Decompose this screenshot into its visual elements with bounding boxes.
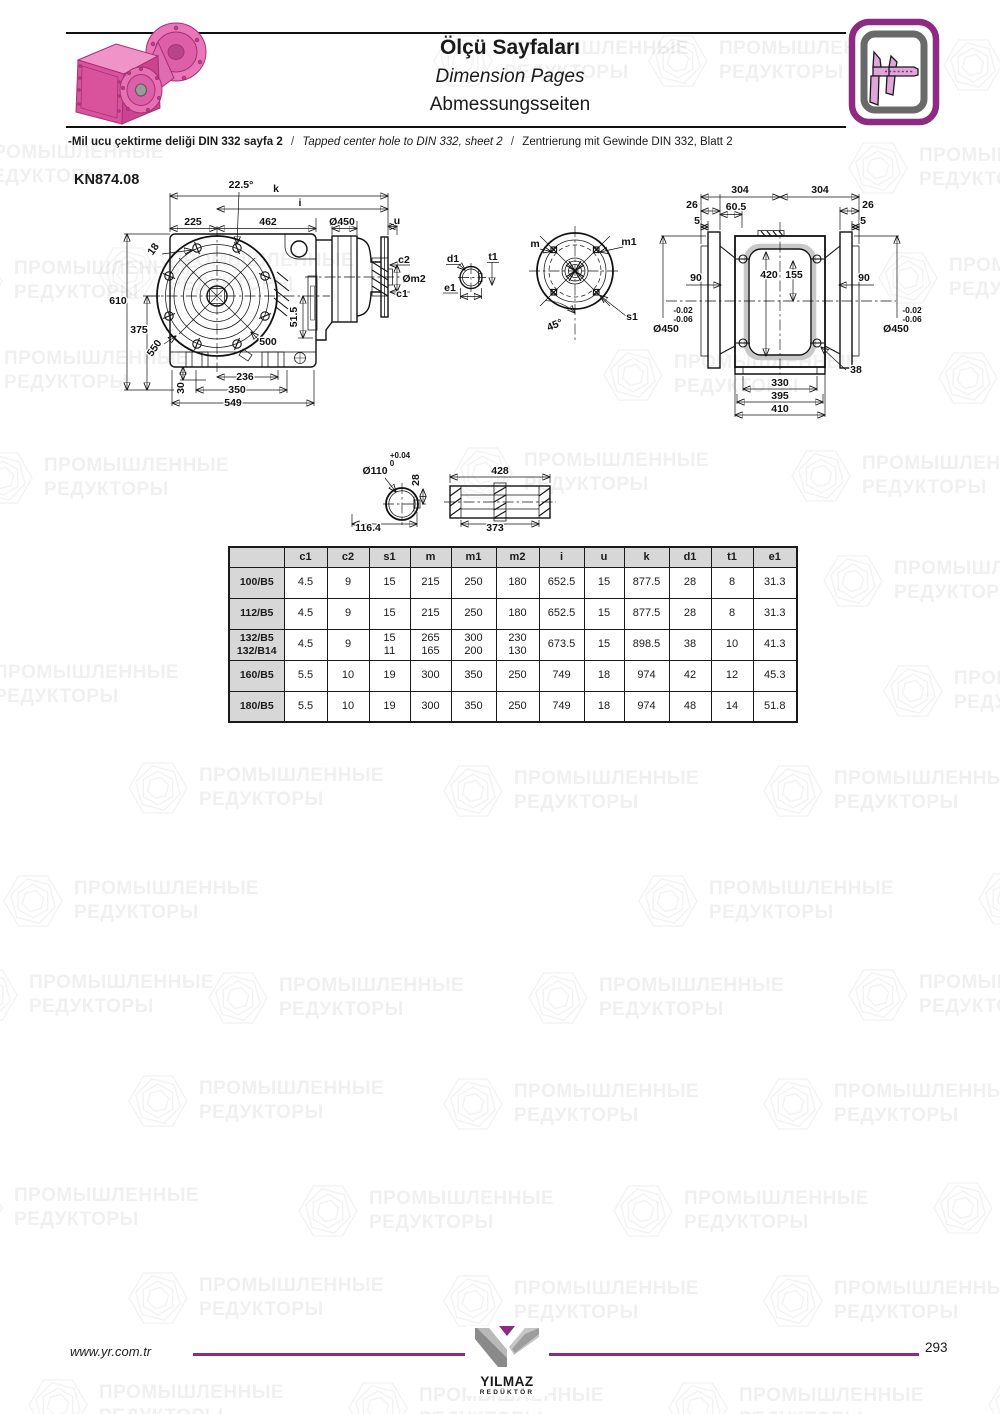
- dimension-label: 225: [184, 216, 202, 228]
- hexagon-logo-watermark-icon: [125, 1265, 191, 1331]
- hexagon-logo-watermark-icon: [610, 1178, 676, 1244]
- watermark-text: ПРОМЫШЛЕННЫЕРЕДУКТОРЫ: [599, 974, 784, 1022]
- table-header-cell: m2: [496, 547, 539, 567]
- hexagon-logo-watermark-icon: [295, 1178, 361, 1244]
- watermark: ПРОМЫШЛЕННЫЕРЕДУКТОРЫ: [635, 868, 894, 934]
- logo-company-name: YILMAZ: [466, 1374, 548, 1389]
- watermark: ПРОМЫШЛЕННЫЕРЕДУКТОРЫ: [0, 1175, 199, 1241]
- hexagon-logo-watermark-icon: [25, 1372, 91, 1414]
- dimension-label: 90: [858, 272, 870, 284]
- table-row: 112/B54.5915215250180652.515877.528831.3: [229, 598, 797, 629]
- hexagon-logo-watermark-icon: [125, 755, 191, 821]
- watermark: ПРОМЫШЛЕННЫЕРЕДУКТОРЫ: [0, 868, 259, 934]
- hexagon-logo-watermark-icon: [760, 758, 826, 824]
- watermark-text: ПРОМЫШЛЕННЫЕРЕДУКТОРЫ: [29, 971, 214, 1019]
- dimension-label: m1: [621, 236, 636, 248]
- dimension-label: 395: [771, 390, 789, 402]
- dimension-label: 428: [491, 465, 509, 477]
- table-header-cell: s1: [369, 547, 410, 567]
- table-cell: 652.5: [539, 567, 584, 598]
- dimension-label: d1: [447, 253, 459, 265]
- table-row: 180/B55.5101930035025074918974481451.8: [229, 691, 797, 722]
- dimension-label: 28: [410, 474, 422, 486]
- table-cell: 250: [496, 660, 539, 691]
- table-cell: 31.3: [753, 598, 797, 629]
- table-header-cell: [229, 547, 284, 567]
- hexagon-logo-watermark-icon: [440, 1268, 506, 1334]
- watermark: ПРОМЫШЛЕННЫЕРЕДУКТОРЫ: [940, 32, 1000, 98]
- watermark: ПРОМЫШЛЕННЫЕРЕДУКТОРЫ: [930, 1175, 1000, 1241]
- hexagon-logo-watermark-icon: [820, 548, 886, 614]
- table-header-cell: k: [624, 547, 669, 567]
- gearbox-image-svg: [62, 16, 212, 128]
- table-cell: 15 11: [369, 629, 410, 660]
- dimension-label: 26: [686, 199, 698, 211]
- watermark-text: ПРОМЫШЛЕННЫЕРЕДУКТОРЫ: [514, 767, 699, 815]
- table-cell: 652.5: [539, 598, 584, 629]
- table-cell: 898.5: [624, 629, 669, 660]
- hexagon-logo-watermark-icon: [345, 1375, 411, 1414]
- watermark: ПРОМЫШЛЕННЫЕРЕДУКТОРЫ: [440, 1268, 699, 1334]
- hexagon-logo-watermark-icon: [940, 32, 1000, 98]
- technical-drawings: 22.5°ki225462Ø450u1861037555050051.53023…: [0, 160, 1000, 545]
- hexagon-logo-watermark-icon: [930, 1175, 996, 1241]
- dimension-label: 410: [771, 403, 789, 415]
- catalog-page: { "header": { "title_tr": "Ölçü Sayfalar…: [0, 0, 1000, 1414]
- dimension-label: 5: [860, 215, 866, 227]
- output-shaft-drawing: [352, 474, 556, 527]
- footer-website: www.yr.com.tr: [70, 1344, 151, 1359]
- table-cell: 41.3: [753, 629, 797, 660]
- table-header-cell: c2: [327, 547, 369, 567]
- watermark: ПРОМЫШЛЕННЫЕРЕДУКТОРЫ: [665, 1375, 924, 1414]
- watermark: ПРОМЫШЛЕННЫЕРЕДУКТОРЫ: [760, 1268, 1000, 1334]
- page-title-german: Abmessungsseiten: [310, 94, 710, 116]
- watermark-text: ПРОМЫШЛЕННЫЕРЕДУКТОРЫ: [369, 1187, 554, 1235]
- table-cell: 18: [584, 691, 624, 722]
- watermark-text: ПРОМЫШЛЕННЫЕРЕДУКТОРЫ: [514, 1277, 699, 1325]
- table-cell: 300: [410, 691, 451, 722]
- watermark-text: ПРОМЫШЛЕННЫЕРЕДУКТОРЫ: [279, 974, 464, 1022]
- dimension-label: e1: [444, 282, 456, 294]
- table-row: 100/B54.5915215250180652.515877.528831.3: [229, 567, 797, 598]
- table-cell: 9: [327, 567, 369, 598]
- hexagon-logo-watermark-icon: [0, 1175, 6, 1241]
- dimension-label: 45°: [545, 317, 564, 334]
- table-cell: 15: [369, 598, 410, 629]
- hexagon-logo-watermark-icon: [635, 868, 701, 934]
- dimension-label: 38: [850, 364, 862, 376]
- watermark: ПРОМЫШЛЕННЫЕРЕДУКТОРЫ: [845, 962, 1000, 1028]
- table-cell: 48: [669, 691, 711, 722]
- table-cell: 180: [496, 567, 539, 598]
- table-cell: 12: [711, 660, 753, 691]
- watermark: ПРОМЫШЛЕННЫЕРЕДУКТОРЫ: [125, 1265, 384, 1331]
- footer-rule-right: [549, 1353, 919, 1356]
- dimension-label: 22.5°: [229, 179, 254, 191]
- table-cell: 51.8: [753, 691, 797, 722]
- watermark-text: ПРОМЫШЛЕННЫЕРЕДУКТОРЫ: [739, 1384, 924, 1414]
- watermark-text: ПРОМЫШЛЕННЫЕРЕДУКТОРЫ: [199, 1077, 384, 1125]
- table-row-label: 112/B5: [229, 598, 284, 629]
- dimension-label: 420: [760, 269, 778, 281]
- dimension-label: 500: [259, 336, 277, 348]
- table-header-cell: i: [539, 547, 584, 567]
- output-flange-view-drawing: [529, 226, 626, 340]
- watermark-text: ПРОМЫШЛЕННЫЕРЕДУКТОРЫ: [14, 1184, 199, 1232]
- table-cell: 10: [327, 691, 369, 722]
- caliper-icon-badge: [848, 18, 940, 131]
- dimension-label: Øm2: [402, 273, 426, 285]
- page-title-block: Ölçü Sayfaları Dimension Pages Abmessung…: [310, 36, 710, 116]
- table-cell: 300: [410, 660, 451, 691]
- table-cell: 45.3: [753, 660, 797, 691]
- table-cell: 974: [624, 660, 669, 691]
- table-cell: 8: [711, 567, 753, 598]
- table-cell: 250: [496, 691, 539, 722]
- caliper-icon: [848, 18, 940, 126]
- dimension-label: 304: [731, 184, 749, 196]
- table-cell: 974: [624, 691, 669, 722]
- watermark-text: ПРОМЫШЛЕННЫЕРЕДУКТОРЫ: [834, 1277, 1000, 1325]
- dimension-label: 373: [486, 522, 504, 534]
- dimension-label: 549: [224, 397, 242, 409]
- dimension-label: 60.5: [726, 201, 747, 213]
- table-cell: 9: [327, 629, 369, 660]
- table-cell: 180: [496, 598, 539, 629]
- hexagon-logo-watermark-icon: [760, 1071, 826, 1137]
- dimension-label: 610: [109, 295, 127, 307]
- watermark: ПРОМЫШЛЕННЫЕРЕДУКТОРЫ: [25, 1372, 284, 1414]
- watermark: ПРОМЫШЛЕННЫЕРЕДУКТОРЫ: [0, 962, 214, 1028]
- watermark-text: ПРОМЫШЛЕННЫЕРЕДУКТОРЫ: [0, 661, 179, 709]
- table-cell: 15: [584, 629, 624, 660]
- watermark: ПРОМЫШЛЕННЫЕРЕДУКТОРЫ: [820, 548, 1000, 614]
- dimension-label: 116.4: [355, 522, 381, 534]
- watermark: ПРОМЫШЛЕННЫЕРЕДУКТОРЫ: [760, 1071, 1000, 1137]
- hexagon-logo-watermark-icon: [440, 758, 506, 824]
- dimension-label: 330: [771, 377, 789, 389]
- table-cell: 215: [410, 598, 451, 629]
- hexagon-logo-watermark-icon: [440, 1071, 506, 1137]
- dimension-label: 30: [175, 382, 187, 394]
- table-cell: 250: [451, 598, 496, 629]
- table-row-label: 180/B5: [229, 691, 284, 722]
- table-cell: 19: [369, 660, 410, 691]
- dimension-label: m: [530, 238, 539, 250]
- watermark-text: ПРОМЫШЛЕННЫЕРЕДУКТОРЫ: [74, 877, 259, 925]
- watermark: ПРОМЫШЛЕННЫЕРЕДУКТОРЫ: [985, 1372, 1000, 1414]
- page-number: 293: [925, 1340, 948, 1355]
- hexagon-logo-watermark-icon: [760, 1268, 826, 1334]
- note-separator: /: [291, 136, 294, 148]
- watermark-text: ПРОМЫШЛЕННЫЕРЕДУКТОРЫ: [954, 667, 1000, 715]
- watermark: ПРОМЫШЛЕННЫЕРЕДУКТОРЫ: [880, 658, 1000, 724]
- table-cell: 4.5: [284, 567, 327, 598]
- watermark: ПРОМЫШЛЕННЫЕРЕДУКТОРЫ: [610, 1178, 869, 1244]
- watermark: ПРОМЫШЛЕННЫЕРЕДУКТОРЫ: [440, 1071, 699, 1137]
- watermark: ПРОМЫШЛЕННЫЕРЕДУКТОРЫ: [205, 965, 464, 1031]
- table-cell: 5.5: [284, 691, 327, 722]
- table-cell: 15: [584, 598, 624, 629]
- table-cell: 42: [669, 660, 711, 691]
- hexagon-logo-watermark-icon: [125, 1068, 191, 1134]
- watermark-text: ПРОМЫШЛЕННЫЕРЕДУКТОРЫ: [99, 1381, 284, 1414]
- gearbox-product-image: [62, 16, 212, 133]
- table-cell: 230 130: [496, 629, 539, 660]
- table-cell: 38: [669, 629, 711, 660]
- dimension-label: 350: [228, 384, 246, 396]
- table-cell: 300 200: [451, 629, 496, 660]
- logo-company-subtitle: REDÜKTÖR: [466, 1389, 548, 1396]
- dimension-label: 375: [130, 324, 148, 336]
- table-cell: 877.5: [624, 567, 669, 598]
- dimensions-table-wrap: c1c2s1mm1m2iukd1t1e1100/B54.591521525018…: [228, 546, 798, 723]
- watermark-text: ПРОМЫШЛЕННЫЕРЕДУКТОРЫ: [199, 764, 384, 812]
- company-logo: YILMAZ REDÜKTÖR: [466, 1326, 548, 1396]
- page-title-english: Dimension Pages: [310, 66, 710, 88]
- watermark: ПРОМЫШЛЕННЫЕРЕДУКТОРЫ: [125, 755, 384, 821]
- hexagon-logo-watermark-icon: [975, 866, 1000, 932]
- table-header-cell: t1: [711, 547, 753, 567]
- dimension-label: 0: [390, 459, 395, 468]
- note-english: Tapped center hole to DIN 332, sheet 2: [302, 136, 502, 148]
- table-row-label: 132/B5 132/B14: [229, 629, 284, 660]
- table-cell: 4.5: [284, 598, 327, 629]
- watermark: ПРОМЫШЛЕННЫЕРЕДУКТОРЫ: [525, 965, 784, 1031]
- table-cell: 10: [711, 629, 753, 660]
- watermark: ПРОМЫШЛЕННЫЕРЕДУКТОРЫ: [0, 652, 179, 718]
- dimension-label: 5: [694, 215, 700, 227]
- footer-rule-left: [193, 1353, 465, 1356]
- table-row: 160/B55.5101930035025074918974421245.3: [229, 660, 797, 691]
- table-cell: 265 165: [410, 629, 451, 660]
- watermark-text: ПРОМЫШЛЕННЫЕРЕДУКТОРЫ: [919, 971, 1000, 1019]
- table-cell: 31.3: [753, 567, 797, 598]
- shaft-section-labels: +0.040Ø11028116.4428373: [355, 451, 509, 534]
- table-header-cell: e1: [753, 547, 797, 567]
- note-separator: /: [511, 136, 514, 148]
- watermark: ПРОМЫШЛЕННЫЕРЕДУКТОРЫ: [760, 758, 1000, 824]
- watermark: ПРОМЫШЛЕННЫЕРЕДУКТОРЫ: [125, 1068, 384, 1134]
- watermark: ПРОМЫШЛЕННЫЕРЕДУКТОРЫ: [440, 758, 699, 824]
- watermark: ПРОМЫШЛЕННЫЕРЕДУКТОРЫ: [295, 1178, 554, 1244]
- watermark: ПРОМЫШЛЕННЫЕРЕДУКТОРЫ: [975, 866, 1000, 932]
- table-cell: 673.5: [539, 629, 584, 660]
- watermark-text: ПРОМЫШЛЕННЫЕРЕДУКТОРЫ: [709, 877, 894, 925]
- dimension-label: 26: [862, 199, 874, 211]
- side-view-labels: 304304262660.5559090420155-0.02-0.06Ø450…: [653, 184, 922, 415]
- table-cell: 5.5: [284, 660, 327, 691]
- table-cell: 15: [584, 567, 624, 598]
- hexagon-logo-watermark-icon: [0, 868, 66, 934]
- dimension-label: Ø450: [329, 216, 355, 228]
- dimension-label: 304: [811, 184, 829, 196]
- table-cell: 749: [539, 660, 584, 691]
- hexagon-logo-watermark-icon: [205, 965, 271, 1031]
- watermark-text: ПРОМЫШЛЕННЫЕРЕДУКТОРЫ: [834, 1080, 1000, 1128]
- table-cell: 350: [451, 691, 496, 722]
- watermark-text: ПРОМЫШЛЕННЫЕРЕДУКТОРЫ: [894, 557, 1000, 605]
- table-cell: 18: [584, 660, 624, 691]
- table-cell: 749: [539, 691, 584, 722]
- dimension-label: c2: [398, 254, 410, 266]
- page-title-turkish: Ölçü Sayfaları: [310, 36, 710, 60]
- dimensions-table: c1c2s1mm1m2iukd1t1e1100/B54.591521525018…: [228, 546, 798, 723]
- note-german: Zentrierung mit Gewinde DIN 332, Blatt 2: [522, 136, 732, 148]
- table-cell: 15: [369, 567, 410, 598]
- hexagon-logo-watermark-icon: [665, 1375, 731, 1414]
- watermark-text: ПРОМЫШЛЕННЫЕРЕДУКТОРЫ: [514, 1080, 699, 1128]
- table-cell: 28: [669, 598, 711, 629]
- dimension-label: 155: [785, 269, 803, 281]
- table-cell: 4.5: [284, 629, 327, 660]
- dimension-label: c1: [396, 288, 408, 300]
- dimension-label: Ø110: [362, 465, 387, 477]
- table-row-label: 160/B5: [229, 660, 284, 691]
- dimension-label: k: [273, 183, 279, 195]
- table-header-cell: c1: [284, 547, 327, 567]
- dimension-label: Ø450: [653, 323, 679, 335]
- note-turkish: -Mil ucu çektirme deliği DIN 332 sayfa 2: [68, 136, 283, 148]
- table-header-cell: m: [410, 547, 451, 567]
- dimension-label: 462: [259, 216, 277, 228]
- dimension-label: 550: [145, 338, 165, 359]
- dimension-label: i: [299, 197, 302, 209]
- table-row-label: 100/B5: [229, 567, 284, 598]
- hexagon-logo-watermark-icon: [525, 965, 591, 1031]
- table-cell: 350: [451, 660, 496, 691]
- watermark-text: ПРОМЫШЛЕННЫЕРЕДУКТОРЫ: [199, 1274, 384, 1322]
- watermark-text: ПРОМЫШЛЕННЫЕРЕДУКТОРЫ: [834, 767, 1000, 815]
- table-cell: 19: [369, 691, 410, 722]
- table-cell: 9: [327, 598, 369, 629]
- table-cell: 8: [711, 598, 753, 629]
- yilmaz-logo-icon: [467, 1326, 547, 1368]
- table-cell: 14: [711, 691, 753, 722]
- hexagon-logo-watermark-icon: [845, 962, 911, 1028]
- watermark-text: ПРОМЫШЛЕННЫЕРЕДУКТОРЫ: [684, 1187, 869, 1235]
- dimension-label: s1: [626, 311, 638, 323]
- hexagon-logo-watermark-icon: [880, 658, 946, 724]
- table-header-cell: u: [584, 547, 624, 567]
- table-header-cell: m1: [451, 547, 496, 567]
- dimension-label: t1: [488, 251, 497, 263]
- dimension-label: 51.5: [288, 307, 300, 328]
- header-note: -Mil ucu çektirme deliği DIN 332 sayfa 2…: [68, 136, 733, 148]
- dimension-label: 18: [145, 241, 162, 258]
- table-cell: 215: [410, 567, 451, 598]
- dimension-label: u: [394, 215, 400, 227]
- hexagon-logo-watermark-icon: [0, 962, 21, 1028]
- table-cell: 250: [451, 567, 496, 598]
- table-cell: 10: [327, 660, 369, 691]
- hexagon-logo-watermark-icon: [985, 1372, 1000, 1414]
- table-cell: 877.5: [624, 598, 669, 629]
- table-row: 132/B5 132/B144.5915 11265 165300 200230…: [229, 629, 797, 660]
- table-header-cell: d1: [669, 547, 711, 567]
- dimension-label: 236: [236, 371, 254, 383]
- table-cell: 28: [669, 567, 711, 598]
- dimension-label: Ø450: [883, 323, 909, 335]
- dimension-label: 90: [690, 272, 702, 284]
